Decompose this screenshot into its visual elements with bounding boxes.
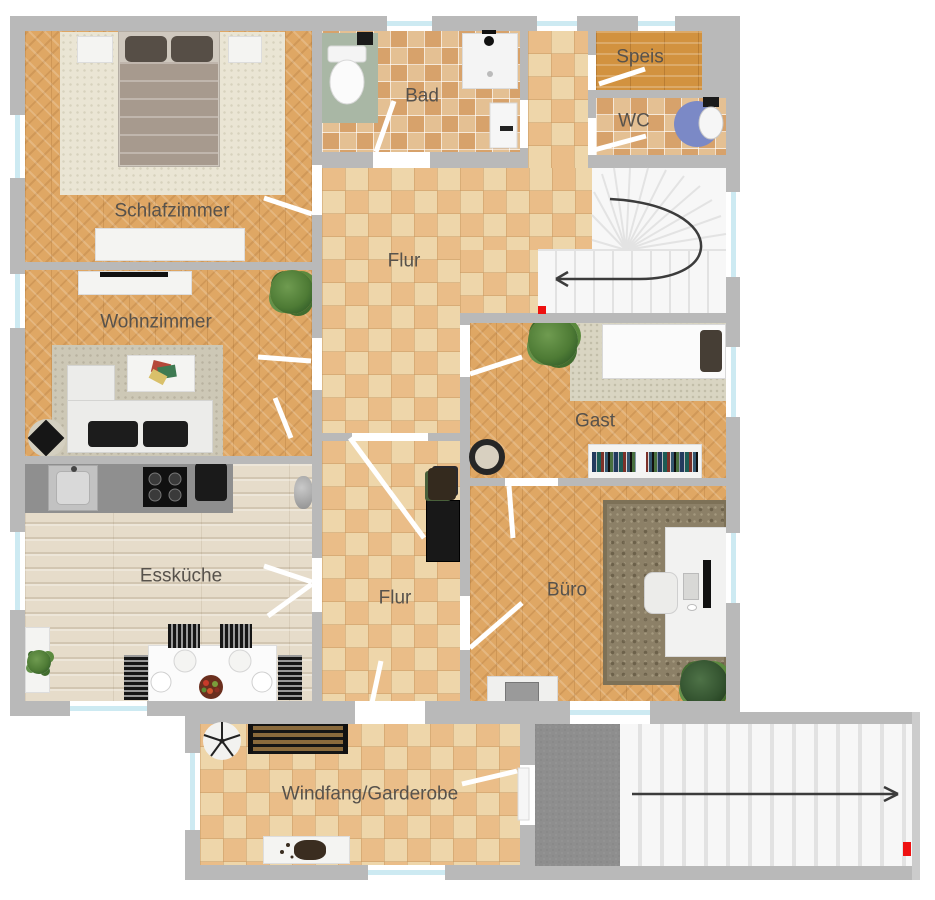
wall-segment xyxy=(577,16,638,31)
wall-segment xyxy=(185,716,200,753)
room-label-wohnzimmer: Wohnzimmer xyxy=(100,313,212,332)
room-label-schlafzimmer: Schlafzimmer xyxy=(114,202,229,221)
dining-chair-top-left[interactable] xyxy=(168,624,200,648)
door-opening-wohnzimmer[interactable] xyxy=(312,338,322,390)
shoes xyxy=(294,840,326,860)
bookshelf-gap xyxy=(636,452,646,472)
wall-segment xyxy=(588,90,596,118)
keyboard xyxy=(683,573,699,600)
nightstand-left[interactable] xyxy=(77,36,113,63)
door-opening-gast-buero[interactable] xyxy=(505,478,558,486)
wall-segment xyxy=(460,313,470,325)
wall-segment xyxy=(10,16,25,115)
window[interactable] xyxy=(70,701,147,716)
wall-segment xyxy=(25,262,312,270)
wall-segment xyxy=(535,712,570,724)
dining-chair-left[interactable] xyxy=(124,655,148,700)
sofa-cushion-left xyxy=(88,421,138,447)
floorplan-canvas: Schlafzimmer Wohnzimmer Essküche Flur Fl… xyxy=(0,0,935,900)
sofa-cushion-right xyxy=(143,421,188,447)
room-label-bad: Bad xyxy=(405,87,439,106)
wall-segment xyxy=(322,152,373,168)
door-opening-windfang[interactable] xyxy=(355,701,425,724)
dining-chair-right[interactable] xyxy=(278,655,302,700)
room-label-speis: Speis xyxy=(616,48,664,67)
guest-pillow xyxy=(700,330,722,372)
cooktop[interactable] xyxy=(143,467,187,507)
wall-segment xyxy=(726,417,740,533)
window[interactable] xyxy=(185,753,200,830)
window[interactable] xyxy=(10,532,25,610)
office-chair[interactable] xyxy=(644,572,678,614)
dining-chair-top-right[interactable] xyxy=(220,624,252,648)
pillow-left xyxy=(125,36,167,62)
room-floor-flur-oben[interactable] xyxy=(322,168,460,433)
door-opening-gast[interactable] xyxy=(460,325,470,377)
window[interactable] xyxy=(537,16,577,31)
wall-segment xyxy=(588,31,596,55)
sink-basin xyxy=(56,471,90,505)
window[interactable] xyxy=(10,115,25,178)
room-floor-flur-landing[interactable] xyxy=(460,250,538,313)
pillow-right xyxy=(171,36,213,62)
wall-segment xyxy=(520,825,535,866)
door-opening-windfang-stairs[interactable] xyxy=(520,765,535,825)
wall-segment xyxy=(10,16,387,31)
bath-shelf xyxy=(357,32,373,45)
wall-segment xyxy=(430,152,528,168)
room-floor-wc[interactable] xyxy=(596,98,726,155)
window[interactable] xyxy=(368,865,445,880)
wall-segment xyxy=(596,90,726,98)
wall-segment xyxy=(460,377,470,596)
window[interactable] xyxy=(726,533,740,603)
room-label-flur-oben: Flur xyxy=(388,252,421,271)
wall-segment xyxy=(185,865,368,880)
door-opening-wc[interactable] xyxy=(588,118,596,155)
window[interactable] xyxy=(638,16,675,31)
plant-gast[interactable] xyxy=(528,316,578,366)
door-opening-buero[interactable] xyxy=(460,596,470,650)
door-opening-schlafzimmer[interactable] xyxy=(312,165,322,215)
wall-segment xyxy=(322,433,352,441)
vase[interactable] xyxy=(294,476,313,509)
bench[interactable] xyxy=(248,722,348,754)
stairs-winder[interactable] xyxy=(592,168,726,250)
stairs-run[interactable] xyxy=(538,250,726,313)
bath-mat xyxy=(322,33,378,123)
room-label-wc: WC xyxy=(618,112,650,131)
wall-segment xyxy=(558,478,726,486)
window[interactable] xyxy=(570,701,650,724)
tv-flatscreen[interactable] xyxy=(100,272,168,277)
wall-segment xyxy=(312,390,322,456)
wall-segment xyxy=(470,478,505,486)
stairwell-steps[interactable] xyxy=(620,724,912,866)
wall-segment xyxy=(588,155,740,168)
room-label-esskueche: Essküche xyxy=(140,567,222,586)
door-opening-speis[interactable] xyxy=(588,55,596,90)
door-opening-esskueche[interactable] xyxy=(312,558,322,612)
wall-segment xyxy=(726,277,740,347)
room-label-windfang: Windfang/Garderobe xyxy=(282,785,458,804)
wardrobe[interactable] xyxy=(95,228,245,261)
wall-segment xyxy=(726,603,740,716)
plant-wohnzimmer[interactable] xyxy=(270,270,314,314)
wall-segment xyxy=(10,328,25,532)
door-opening-bad[interactable] xyxy=(373,152,430,168)
wall-segment xyxy=(10,701,70,716)
stairwell-landing[interactable] xyxy=(535,724,620,866)
wall-segment xyxy=(445,865,535,880)
window[interactable] xyxy=(726,347,740,417)
wall-segment xyxy=(535,866,920,880)
room-floor-flur-strip[interactable] xyxy=(528,31,588,168)
wall-segment xyxy=(460,313,740,323)
wall-segment xyxy=(912,712,920,880)
coffee-table[interactable] xyxy=(127,355,195,392)
wall-segment xyxy=(460,650,470,701)
wall-segment xyxy=(10,178,25,274)
coffee-machine[interactable] xyxy=(195,463,227,501)
wall-shaft xyxy=(702,31,726,90)
room-label-gast: Gast xyxy=(575,412,615,431)
wall-segment xyxy=(520,716,535,765)
shower[interactable] xyxy=(462,33,518,89)
room-label-buero: Büro xyxy=(547,581,587,600)
wall-segment xyxy=(428,433,460,441)
wall-segment xyxy=(147,701,355,716)
plant-kueche[interactable] xyxy=(27,650,51,674)
wall-segment xyxy=(432,16,537,31)
wall-segment xyxy=(312,215,322,338)
wall-segment xyxy=(650,712,920,724)
nightstand-right[interactable] xyxy=(228,36,262,63)
monitor[interactable] xyxy=(703,560,711,608)
mouse xyxy=(687,604,697,611)
window[interactable] xyxy=(726,192,740,277)
door-opening-flur[interactable] xyxy=(352,433,428,441)
window[interactable] xyxy=(10,274,25,328)
wall-segment xyxy=(520,148,528,168)
wall-segment xyxy=(312,464,322,558)
wall-segment xyxy=(520,31,528,100)
bed-blanket xyxy=(120,62,218,165)
door-opening-bad-flur[interactable] xyxy=(520,100,528,148)
room-floor-flur-stairs[interactable] xyxy=(460,168,592,250)
room-label-flur-unten: Flur xyxy=(379,589,412,608)
window[interactable] xyxy=(387,16,432,31)
wall-segment xyxy=(312,612,322,701)
decor-pile xyxy=(428,468,456,500)
wall-segment xyxy=(312,31,322,165)
wall-segment xyxy=(25,456,322,464)
hall-cabinet[interactable] xyxy=(426,500,460,562)
